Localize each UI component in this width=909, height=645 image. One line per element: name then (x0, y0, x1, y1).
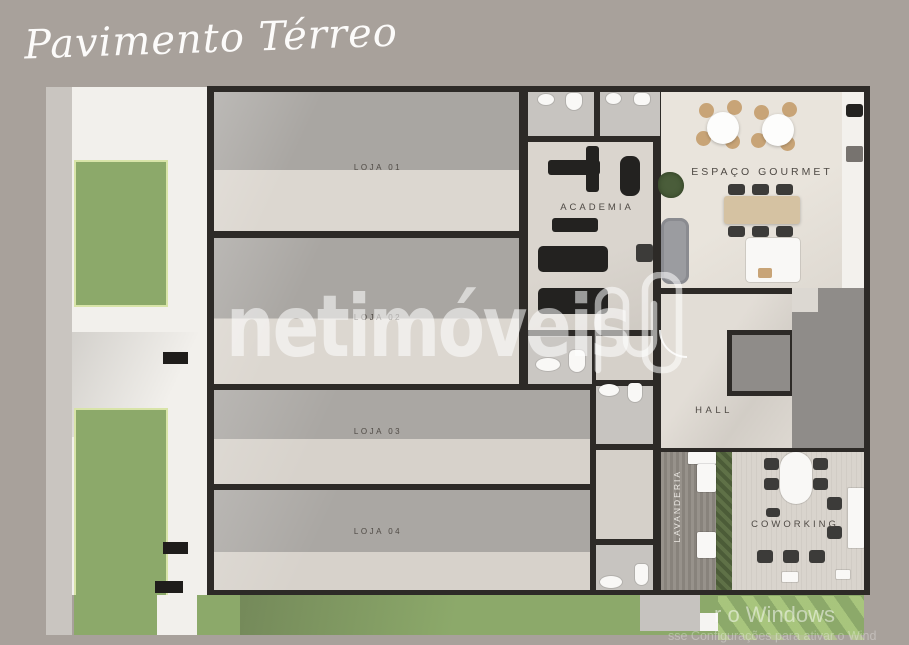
lawn-lower (74, 408, 168, 599)
label-espaco-gourmet: ESPAÇO GOURMET (691, 166, 833, 178)
label-loja-03: LOJA 03 (354, 427, 402, 436)
desk-icon (848, 488, 864, 548)
gym-bench-icon (552, 218, 598, 232)
toilet-icon (634, 93, 650, 105)
fridge-icon (846, 146, 863, 162)
washing-machine-icon (697, 464, 716, 492)
laundry-counter-icon (688, 452, 716, 464)
desk-item-icon (836, 570, 850, 579)
lawn-upper (74, 160, 168, 307)
desk-item-icon (782, 572, 798, 582)
netimoveis-n-logo-icon (588, 272, 683, 374)
label-hall: HALL (695, 405, 733, 416)
chair-icon (783, 550, 799, 563)
meeting-table-icon (780, 452, 812, 504)
chair-icon (813, 458, 828, 470)
plant-icon (658, 172, 684, 198)
concrete-pad (640, 595, 700, 631)
label-coworking: COWORKING (751, 519, 839, 530)
kitchen-counter-strip (842, 92, 864, 288)
floor-plan-canvas: Pavimento Térreo (0, 0, 909, 645)
treadmill-icon (538, 246, 608, 272)
gym-bike-icon (620, 156, 640, 196)
chair-icon (752, 184, 769, 195)
dining-table-icon (724, 196, 800, 224)
lawn-tree-shadow (240, 595, 570, 635)
chair-icon (752, 226, 769, 237)
chair-icon (764, 478, 779, 490)
hall-elevator-block (727, 330, 795, 396)
entry-pillar-lower (163, 542, 188, 554)
gym-rack-icon (586, 146, 599, 192)
service-core-block (792, 288, 864, 448)
street-strip (46, 87, 72, 635)
entry-pillar-upper (163, 352, 188, 364)
page-title: Pavimento Térreo (23, 9, 398, 68)
laptop-icon (766, 508, 780, 517)
label-academia: ACADEMIA (560, 202, 634, 213)
toilet-icon (628, 383, 642, 402)
room-loja-04 (214, 490, 590, 590)
walkway-through-lawn (157, 595, 197, 635)
chair-icon (757, 550, 773, 563)
chair-icon (728, 184, 745, 195)
room-loja-03 (214, 390, 590, 484)
chair-icon (764, 458, 779, 470)
entry-pillar-bottom (155, 581, 183, 593)
chair-icon (728, 226, 745, 237)
chair-icon (809, 550, 825, 563)
chair-icon (776, 184, 793, 195)
sink-icon (606, 93, 621, 104)
kitchen-island-icon (746, 238, 800, 282)
sink-icon (538, 94, 554, 105)
round-table-icon (762, 114, 794, 146)
windows-activation-watermark-line2: sse Configurações para ativar o Wind (668, 629, 876, 643)
sink-icon (599, 384, 619, 396)
toilet-icon (635, 564, 648, 585)
stair-notch (792, 288, 818, 312)
label-loja-04: LOJA 04 (354, 527, 402, 536)
oven-icon (846, 104, 863, 117)
chair-icon (813, 478, 828, 490)
sink-icon (600, 576, 622, 588)
brand-watermark-text: netimóveis (226, 284, 629, 370)
hedge-strip (716, 452, 732, 590)
round-table-icon (707, 112, 739, 144)
dumbbell-rack-icon (636, 244, 653, 262)
corridor-mid-lower (596, 450, 653, 539)
chair-icon (776, 226, 793, 237)
label-loja-01: LOJA 01 (354, 163, 402, 172)
cutting-board-icon (758, 268, 772, 278)
windows-activation-watermark-line1: r o Windows (714, 602, 835, 628)
washing-machine-icon (697, 532, 716, 558)
label-lavanderia: LAVANDERIA (672, 470, 682, 543)
toilet-icon (566, 93, 582, 110)
chair-icon (827, 497, 842, 510)
room-loja-01 (214, 92, 519, 231)
